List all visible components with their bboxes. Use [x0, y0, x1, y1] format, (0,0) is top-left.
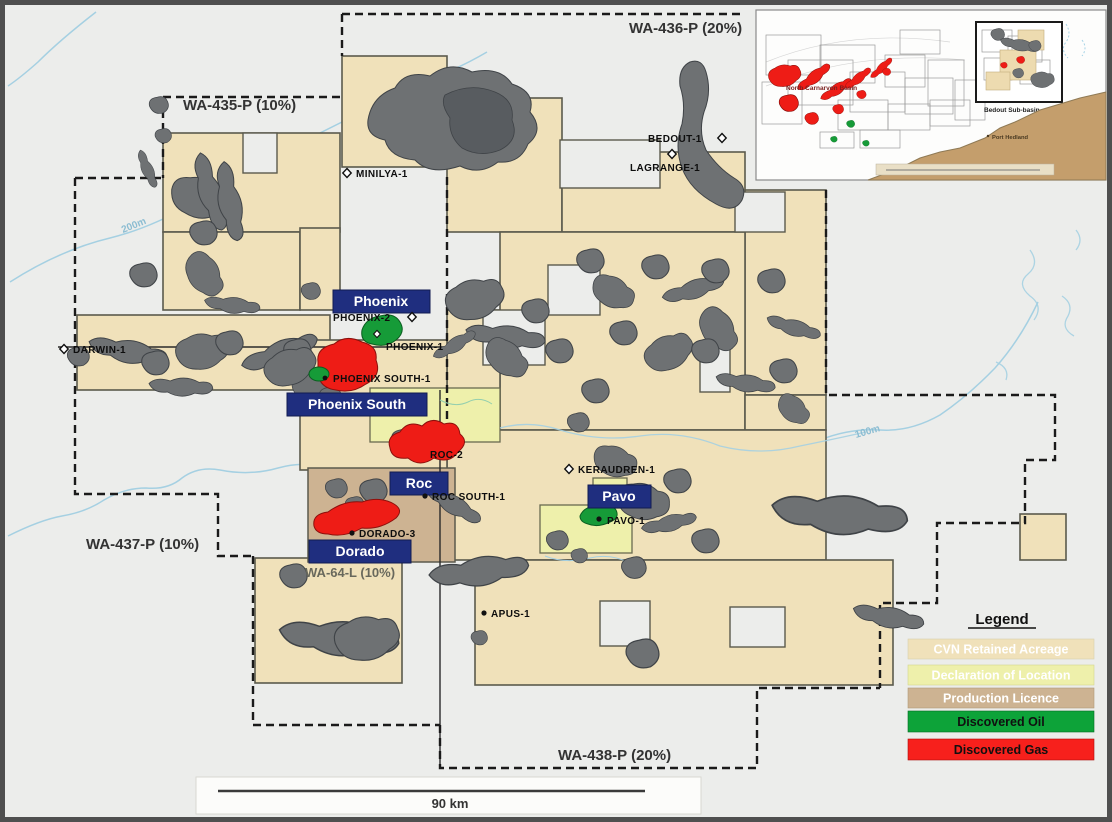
well-label-minilya-1: MINILYA-1: [356, 169, 408, 180]
well-label-darwin-1: DARWIN-1: [73, 345, 126, 356]
field-label-pavo: Pavo: [602, 488, 635, 504]
well-label-roc-south-1: ROC SOUTH-1: [432, 492, 505, 503]
well-label-lagrange-1: LAGRANGE-1: [630, 163, 700, 174]
permit-label-wa-438-p: WA-438-P (20%): [558, 747, 671, 764]
well-marker-dot: [481, 610, 486, 615]
field-label-roc: Roc: [406, 475, 433, 491]
well-label-roc-2: ROC-2: [430, 450, 463, 461]
well-label-dorado-3: DORADO-3: [359, 529, 416, 540]
scale-bar-label: 90 km: [432, 796, 469, 811]
map-canvas: Phoenix Phoenix South Roc Dorado Pavo MI…: [0, 0, 1112, 822]
permit-label-wa-435-p: WA-435-P (10%): [183, 97, 296, 114]
inset-coast-label: Port Hedland: [992, 135, 1029, 141]
well-label-apus-1: APUS-1: [491, 609, 530, 620]
field-label-phoenix: Phoenix: [354, 293, 409, 309]
well-label-keraudren-1: KERAUDREN-1: [578, 465, 655, 476]
inset-locator-map: North Carnarvon Basin Bedout Sub-basin P…: [756, 10, 1106, 180]
scale-bar: 90 km: [196, 777, 701, 814]
well-marker-dot: [323, 376, 328, 381]
inset-basin-label: North Carnarvon Basin: [786, 85, 857, 92]
legend-label-declaration: Declaration of Location: [932, 669, 1071, 683]
inset-bedout-box: [976, 22, 1062, 102]
well-label-phoenix-1: PHOENIX-1: [386, 342, 444, 353]
well-marker-dot: [422, 493, 427, 498]
field-label-dorado: Dorado: [336, 543, 385, 559]
well-marker-dot: [596, 516, 601, 521]
well-label-pavo-1: PAVO-1: [607, 516, 645, 527]
well-label-phoenix-2: PHOENIX-2: [333, 313, 391, 324]
permit-map-figure: Phoenix Phoenix South Roc Dorado Pavo MI…: [0, 0, 1112, 822]
legend-label-discovered-oil: Discovered Oil: [957, 715, 1045, 729]
well-label-bedout-1: BEDOUT-1: [648, 134, 702, 145]
legend-label-production-licence: Production Licence: [943, 692, 1059, 706]
well-marker-dot: [349, 530, 354, 535]
inset-box-label: Bedout Sub-basin: [984, 107, 1040, 114]
field-label-phoenix-south: Phoenix South: [308, 396, 406, 412]
legend-title: Legend: [975, 611, 1028, 628]
legend-label-retained-acreage: CVN Retained Acreage: [934, 643, 1069, 657]
permit-label-wa-64-l: WA-64-L (10%): [305, 565, 395, 580]
permit-label-wa-437-p: WA-437-P (10%): [86, 536, 199, 553]
legend-label-discovered-gas: Discovered Gas: [954, 743, 1049, 757]
well-label-phoenix-south-1: PHOENIX SOUTH-1: [333, 374, 431, 385]
inset-town-marker: [987, 135, 989, 137]
permit-label-wa-436-p: WA-436-P (20%): [629, 20, 742, 37]
